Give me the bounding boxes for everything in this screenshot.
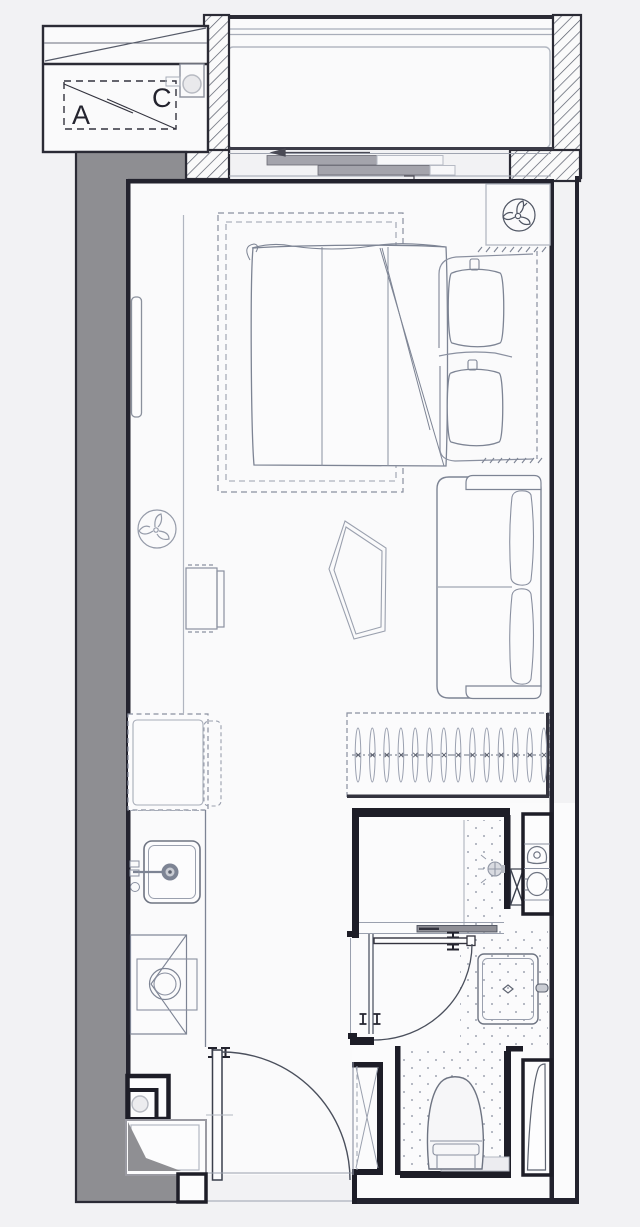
svg-text:C: C xyxy=(152,83,172,113)
svg-text:A: A xyxy=(72,100,90,130)
